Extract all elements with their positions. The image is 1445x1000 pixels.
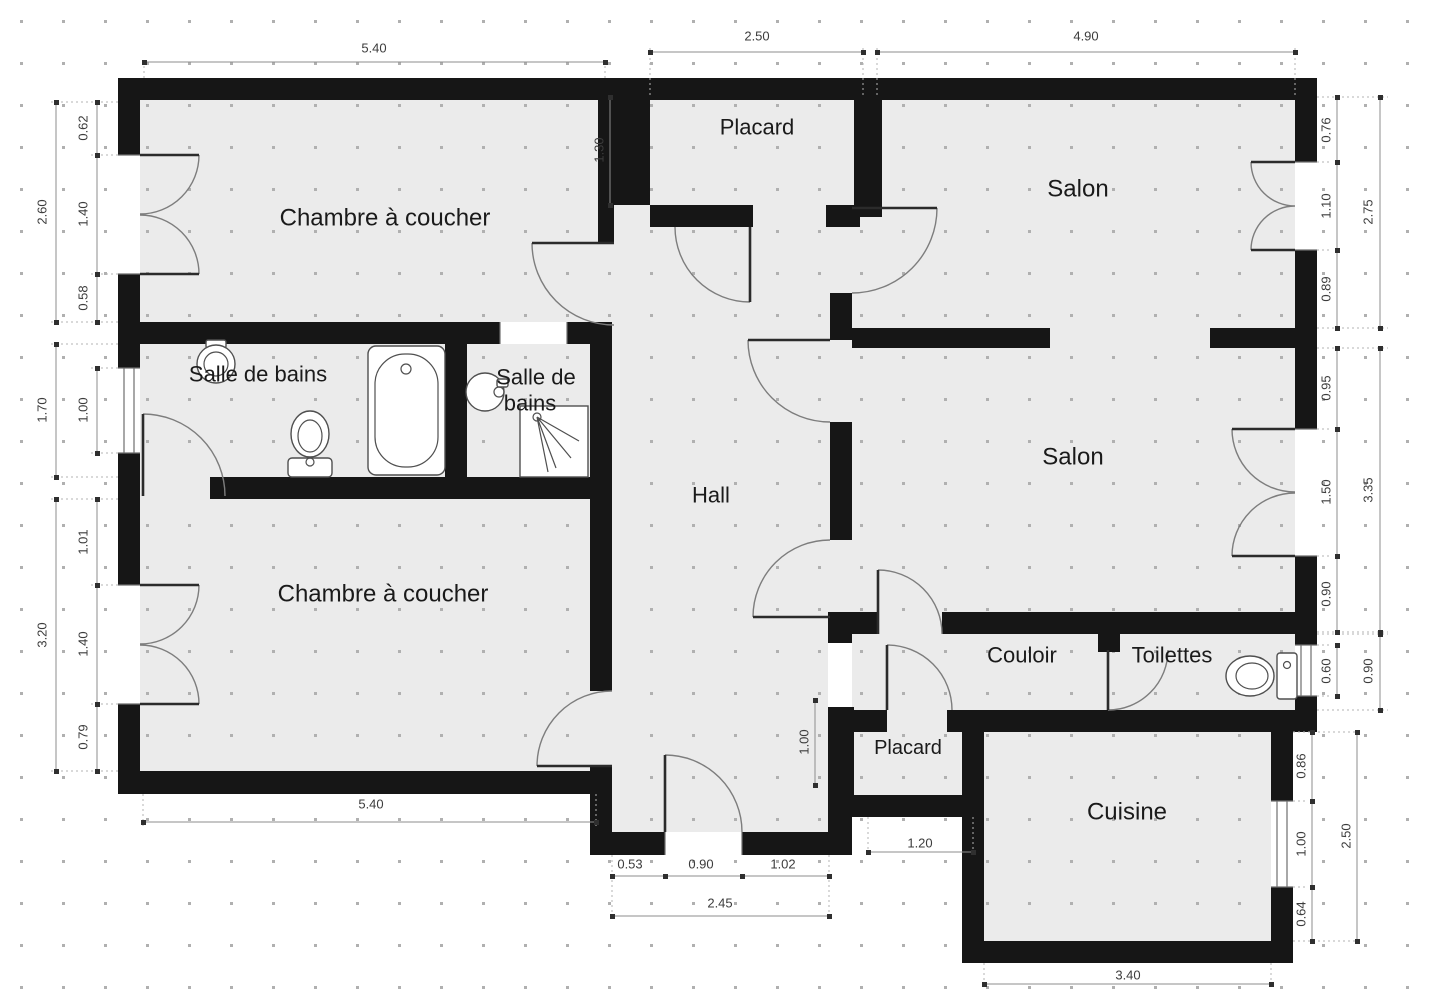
dim-right-kitchen-b: 1.00 xyxy=(1294,831,1309,856)
dim-left-bedroom2-total: 3.20 xyxy=(35,622,50,647)
dim-right-kitchen-total: 2.50 xyxy=(1339,823,1354,848)
dim-bottom-entry-c: 1.02 xyxy=(770,857,795,872)
dim-left-bath-total: 1.70 xyxy=(35,397,50,422)
dim-left-bedroom-total: 2.60 xyxy=(35,199,50,224)
room-label-bathroom-main: Salle de bains xyxy=(189,362,327,387)
room-label-bedroom-top: Chambre à coucher xyxy=(280,205,491,232)
room-label-wc: Toilettes xyxy=(1132,643,1213,668)
floor-plan-drawing: 5.40 2.50 4.90 2.60 0.62 1.40 0.58 1.70 … xyxy=(0,0,1445,1000)
dim-right-living-total: 2.75 xyxy=(1361,199,1376,224)
dim-right-living-a: 0.76 xyxy=(1319,117,1334,142)
dim-bottom-entry-b: 0.90 xyxy=(688,857,713,872)
dim-inner-gap: 1.30 xyxy=(592,137,607,162)
dim-right-living-b: 1.10 xyxy=(1319,193,1334,218)
dim-top-closet: 2.50 xyxy=(744,29,769,44)
dim-left-bedroom-a: 0.62 xyxy=(76,115,91,140)
dim-left-bedroom2-a: 1.01 xyxy=(76,529,91,554)
dim-top-bedroom: 5.40 xyxy=(361,41,386,56)
room-label-hall: Hall xyxy=(692,483,730,508)
dim-right-salon-a: 0.95 xyxy=(1319,375,1334,400)
toilet-wc-icon xyxy=(1226,653,1297,699)
dim-right-salon-total: 3.35 xyxy=(1361,477,1376,502)
dim-hall-inner: 1.00 xyxy=(797,729,812,754)
dim-right-wc-window: 0.60 xyxy=(1319,658,1334,683)
dim-right-salon-c: 0.90 xyxy=(1319,581,1334,606)
dim-right-kitchen-a: 0.86 xyxy=(1294,753,1309,778)
room-label-living-top: Salon xyxy=(1047,176,1108,203)
dim-right-kitchen-c: 0.64 xyxy=(1294,901,1309,926)
dim-right-wc-total: 0.90 xyxy=(1361,658,1376,683)
shower-icon xyxy=(520,406,588,477)
dim-bottom-bedroom2: 5.40 xyxy=(358,797,383,812)
room-label-living-main: Salon xyxy=(1042,444,1103,471)
dim-left-bedroom2-b: 1.40 xyxy=(76,631,91,656)
dim-left-bedroom2-c: 0.79 xyxy=(76,724,91,749)
dim-bottom-kitchen: 3.40 xyxy=(1115,968,1140,983)
room-label-kitchen: Cuisine xyxy=(1087,799,1167,826)
dim-left-bath-window: 1.00 xyxy=(76,397,91,422)
dim-right-living-c: 0.89 xyxy=(1319,276,1334,301)
dim-right-salon-b: 1.50 xyxy=(1319,479,1334,504)
dim-left-bedroom-c: 0.58 xyxy=(76,285,91,310)
room-label-closet-top: Placard xyxy=(720,115,795,140)
dim-bottom-entry-a: 0.53 xyxy=(617,857,642,872)
toilet-icon xyxy=(288,411,332,477)
dim-closet-bottom-width: 1.20 xyxy=(907,836,932,851)
dim-left-bedroom-b: 1.40 xyxy=(76,201,91,226)
room-label-corridor: Couloir xyxy=(987,643,1057,668)
floor-plan: 5.40 2.50 4.90 2.60 0.62 1.40 0.58 1.70 … xyxy=(0,0,1445,1000)
room-label-bedroom-bottom: Chambre à coucher xyxy=(278,581,489,608)
bathtub-icon xyxy=(368,346,445,475)
dim-bottom-entry-total: 2.45 xyxy=(707,896,732,911)
room-label-closet-bottom: Placard xyxy=(874,737,942,759)
dim-top-living: 4.90 xyxy=(1073,29,1098,44)
room-label-bathroom-small-line1: Salle de xyxy=(496,365,576,390)
room-label-bathroom-small-line2: bains xyxy=(504,391,557,416)
